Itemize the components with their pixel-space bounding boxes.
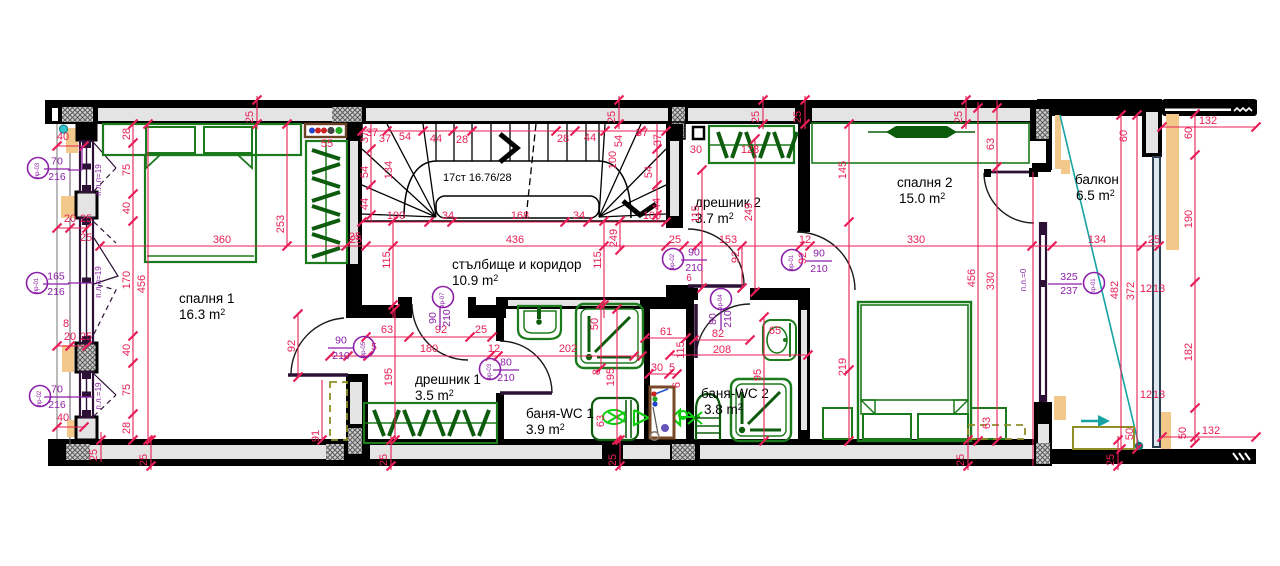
svg-text:60: 60 [1183, 127, 1195, 139]
svg-text:195: 195 [383, 368, 395, 386]
svg-text:6: 6 [686, 273, 692, 284]
svg-text:пр-03: пр-03 [35, 162, 41, 178]
svg-text:пр-01: пр-01 [1091, 278, 1097, 294]
svg-text:165: 165 [47, 271, 65, 283]
svg-text:456: 456 [966, 269, 978, 287]
svg-text:17ст 16.76/28: 17ст 16.76/28 [443, 172, 512, 184]
svg-text:360: 360 [213, 234, 231, 246]
svg-text:182: 182 [1183, 343, 1195, 361]
svg-text:стълбище и коридор: стълбище и коридор [452, 257, 582, 272]
svg-text:25: 25 [244, 111, 256, 123]
svg-text:40: 40 [57, 131, 69, 143]
svg-text:34: 34 [573, 210, 585, 222]
svg-text:219: 219 [837, 358, 849, 376]
svg-text:237: 237 [1060, 285, 1078, 297]
svg-text:195: 195 [605, 368, 617, 386]
svg-text:5: 5 [669, 362, 675, 374]
svg-text:25: 25 [80, 331, 92, 343]
svg-text:28: 28 [121, 422, 133, 434]
svg-text:210: 210 [685, 262, 703, 274]
svg-text:44: 44 [651, 198, 663, 210]
svg-text:210: 210 [810, 263, 828, 275]
svg-text:92: 92 [730, 251, 742, 263]
svg-text:25: 25 [80, 213, 92, 225]
svg-text:92: 92 [797, 252, 809, 264]
svg-text:132: 132 [1202, 425, 1220, 437]
svg-text:115: 115 [690, 205, 702, 223]
svg-text:15.0 m2: 15.0 m2 [899, 191, 945, 206]
svg-text:325: 325 [1060, 271, 1078, 283]
svg-text:3.9 m2: 3.9 m2 [526, 422, 565, 437]
svg-text:44: 44 [430, 133, 442, 145]
svg-text:28: 28 [456, 134, 468, 146]
svg-text:3.5 m2: 3.5 m2 [415, 388, 454, 403]
svg-text:63: 63 [595, 415, 607, 427]
svg-text:249: 249 [743, 203, 755, 221]
svg-text:30: 30 [651, 362, 663, 374]
svg-text:50: 50 [1177, 427, 1189, 439]
svg-text:37: 37 [379, 133, 391, 145]
svg-text:25: 25 [953, 111, 965, 123]
svg-text:50: 50 [589, 318, 601, 330]
svg-text:54: 54 [399, 131, 411, 143]
svg-text:63: 63 [985, 138, 997, 150]
svg-text:25: 25 [475, 324, 487, 336]
svg-text:вр-03: вр-03 [487, 363, 493, 379]
svg-text:70: 70 [51, 156, 63, 168]
svg-text:132: 132 [1199, 115, 1217, 127]
svg-text:75: 75 [121, 164, 133, 176]
svg-text:216: 216 [48, 399, 66, 411]
svg-text:456: 456 [136, 275, 148, 293]
svg-text:25: 25 [955, 454, 967, 466]
svg-text:61: 61 [660, 326, 672, 338]
svg-text:436: 436 [506, 234, 524, 246]
svg-text:63: 63 [381, 324, 393, 336]
svg-text:55: 55 [321, 138, 333, 150]
svg-text:253: 253 [275, 215, 287, 233]
svg-text:330: 330 [907, 234, 925, 246]
svg-text:372: 372 [1125, 282, 1137, 300]
svg-text:153: 153 [719, 234, 737, 246]
svg-text:100: 100 [643, 210, 661, 222]
svg-text:6.5 m2: 6.5 m2 [1076, 188, 1115, 203]
svg-text:100: 100 [387, 210, 405, 222]
svg-text:28: 28 [121, 128, 133, 140]
svg-text:134: 134 [1088, 234, 1106, 246]
svg-text:25: 25 [1105, 454, 1117, 466]
svg-text:90: 90 [688, 247, 700, 259]
svg-text:134: 134 [383, 161, 395, 179]
svg-text:145: 145 [837, 161, 849, 179]
svg-text:вр-07: вр-07 [440, 292, 446, 308]
svg-text:100: 100 [607, 151, 619, 169]
svg-text:25: 25 [80, 232, 92, 244]
svg-text:115: 115 [675, 341, 687, 359]
svg-text:25: 25 [138, 454, 150, 466]
svg-text:п.л.п=19: п.л.п=19 [94, 164, 103, 196]
svg-text:54: 54 [643, 166, 655, 178]
svg-text:вр-01: вр-01 [789, 254, 795, 270]
svg-text:210: 210 [722, 310, 734, 328]
svg-text:168: 168 [511, 210, 529, 222]
svg-text:54: 54 [359, 166, 371, 178]
svg-text:80: 80 [707, 313, 719, 325]
svg-text:37: 37 [359, 131, 371, 143]
svg-text:25: 25 [750, 111, 762, 123]
svg-text:44: 44 [584, 132, 596, 144]
svg-text:95: 95 [752, 369, 764, 381]
svg-text:70: 70 [51, 384, 63, 396]
svg-text:80: 80 [500, 357, 512, 369]
svg-text:вр-02: вр-02 [670, 253, 676, 269]
svg-text:6: 6 [671, 382, 683, 388]
svg-text:34: 34 [442, 210, 454, 222]
svg-text:44: 44 [359, 198, 371, 210]
svg-text:330: 330 [985, 272, 997, 290]
svg-text:п.л.=0: п.л.=0 [1019, 268, 1028, 291]
svg-text:115: 115 [592, 251, 604, 269]
svg-text:65: 65 [769, 325, 781, 337]
svg-text:28: 28 [557, 133, 569, 145]
svg-text:90: 90 [813, 248, 825, 260]
svg-text:12: 12 [799, 234, 811, 246]
svg-text:балкон: балкон [1075, 172, 1119, 187]
svg-text:54: 54 [613, 135, 625, 147]
svg-text:13: 13 [1153, 283, 1165, 295]
svg-text:37: 37 [652, 134, 664, 146]
svg-text:25: 25 [606, 111, 618, 123]
svg-text:50: 50 [1124, 428, 1136, 440]
svg-text:60: 60 [1118, 130, 1130, 142]
svg-text:190: 190 [1183, 210, 1195, 228]
svg-text:13: 13 [1153, 389, 1165, 401]
svg-text:40: 40 [57, 412, 69, 424]
svg-text:п.л.п=19: п.л.п=19 [94, 266, 103, 298]
svg-text:3.8 m2: 3.8 m2 [704, 402, 743, 417]
svg-text:вр-04: вр-04 [718, 294, 724, 310]
svg-text:170: 170 [121, 271, 133, 289]
svg-text:40: 40 [121, 202, 133, 214]
svg-text:249: 249 [608, 229, 620, 247]
svg-text:37: 37 [636, 127, 648, 139]
svg-text:210: 210 [497, 372, 515, 384]
svg-text:25: 25 [1148, 234, 1160, 246]
svg-text:25: 25 [378, 454, 390, 466]
svg-text:128: 128 [741, 144, 759, 156]
svg-text:25: 25 [792, 111, 804, 123]
svg-text:спалня 1: спалня 1 [179, 291, 234, 306]
svg-text:216: 216 [47, 286, 65, 298]
svg-text:210: 210 [332, 350, 350, 362]
svg-text:482: 482 [1109, 281, 1121, 299]
svg-text:82: 82 [712, 328, 724, 340]
svg-text:баня-WC 1: баня-WC 1 [526, 406, 594, 421]
svg-text:25: 25 [349, 231, 361, 243]
svg-text:п.л.=19: п.л.=19 [94, 382, 103, 410]
svg-text:75: 75 [121, 384, 133, 396]
svg-text:12: 12 [1140, 389, 1152, 401]
svg-text:90: 90 [335, 335, 347, 347]
svg-text:20: 20 [64, 331, 76, 343]
svg-text:пр-01: пр-01 [34, 277, 40, 293]
svg-text:115: 115 [381, 251, 393, 269]
svg-text:вр-05: вр-05 [361, 341, 367, 357]
svg-text:дрешник 1: дрешник 1 [415, 372, 481, 387]
svg-text:90: 90 [427, 312, 439, 324]
svg-text:180: 180 [420, 343, 438, 355]
svg-text:63: 63 [981, 417, 993, 429]
svg-text:25: 25 [88, 449, 100, 461]
svg-text:91: 91 [310, 430, 322, 442]
svg-text:208: 208 [713, 344, 731, 356]
svg-text:20: 20 [64, 213, 76, 225]
svg-text:спалня 2: спалня 2 [897, 175, 952, 190]
svg-text:25: 25 [607, 454, 619, 466]
svg-text:16.3 m2: 16.3 m2 [179, 307, 225, 322]
svg-text:12: 12 [1140, 283, 1152, 295]
svg-text:216: 216 [48, 171, 66, 183]
svg-text:пр-02: пр-02 [37, 390, 43, 406]
svg-text:8: 8 [591, 369, 603, 375]
svg-text:92: 92 [286, 340, 298, 352]
svg-text:40: 40 [121, 344, 133, 356]
svg-text:202: 202 [559, 343, 577, 355]
svg-text:10.9 m2: 10.9 m2 [452, 273, 498, 288]
svg-text:30: 30 [690, 144, 702, 156]
svg-text:210: 210 [441, 309, 453, 327]
svg-text:12: 12 [488, 343, 500, 355]
svg-text:25: 25 [669, 234, 681, 246]
svg-text:баня-WC 2: баня-WC 2 [701, 386, 769, 401]
svg-text:8: 8 [63, 318, 69, 330]
